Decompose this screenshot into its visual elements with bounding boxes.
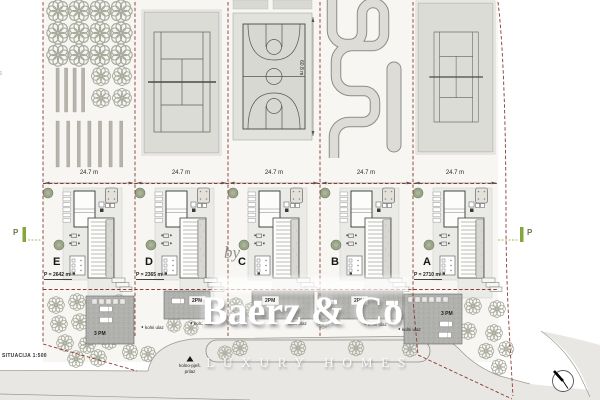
edge-text-fragment: 6 xyxy=(0,71,2,77)
plot-letter-b: B xyxy=(331,256,339,268)
tennis-court-d xyxy=(142,10,221,155)
entry-arrow-icon: ◄ xyxy=(140,325,143,329)
plan-scale-label: SITUACIJA 1:500 xyxy=(2,353,47,359)
watermark-by: by xyxy=(224,243,240,263)
plot-width-label-d: 24.7 m xyxy=(161,170,201,176)
parking-count-e: 3 PM xyxy=(94,331,106,337)
plot-letter-a: A xyxy=(423,256,431,268)
tennis-court-a xyxy=(416,1,495,154)
plot-letter-d: D xyxy=(145,256,153,268)
plot-area-e: P = 2642 m² xyxy=(44,272,72,280)
plot-width-label-b: 24.7 m xyxy=(346,170,386,176)
parking-marker-right: P xyxy=(527,228,532,237)
watermark-brand: Baerz & Co xyxy=(170,287,434,334)
watermark-tagline: LUXURY HOMES xyxy=(190,355,430,371)
plot-width-label-e: 24.7 m xyxy=(69,170,109,176)
plot-width-label-c: 24.7 m xyxy=(254,170,294,176)
plot-letter-e: E xyxy=(53,256,60,268)
plot-area-a: P = 2710 m² xyxy=(414,272,442,280)
parking-marker-left: P xyxy=(13,228,18,237)
driveway-entry-label-1: ◄ kolni ulaz xyxy=(130,325,174,330)
parking-count-a: 3 PM xyxy=(441,311,453,317)
site-plan: 6 24.7 m 24.7 m 24.7 m 24.7 m 24.7 m 60.… xyxy=(0,0,600,400)
plot-width-label-a: 24.7 m xyxy=(435,170,475,176)
plot-area-d: P = 2365 m² xyxy=(136,272,164,280)
north-compass-icon xyxy=(553,371,574,392)
court-length-label: 60.8 m xyxy=(298,60,304,75)
